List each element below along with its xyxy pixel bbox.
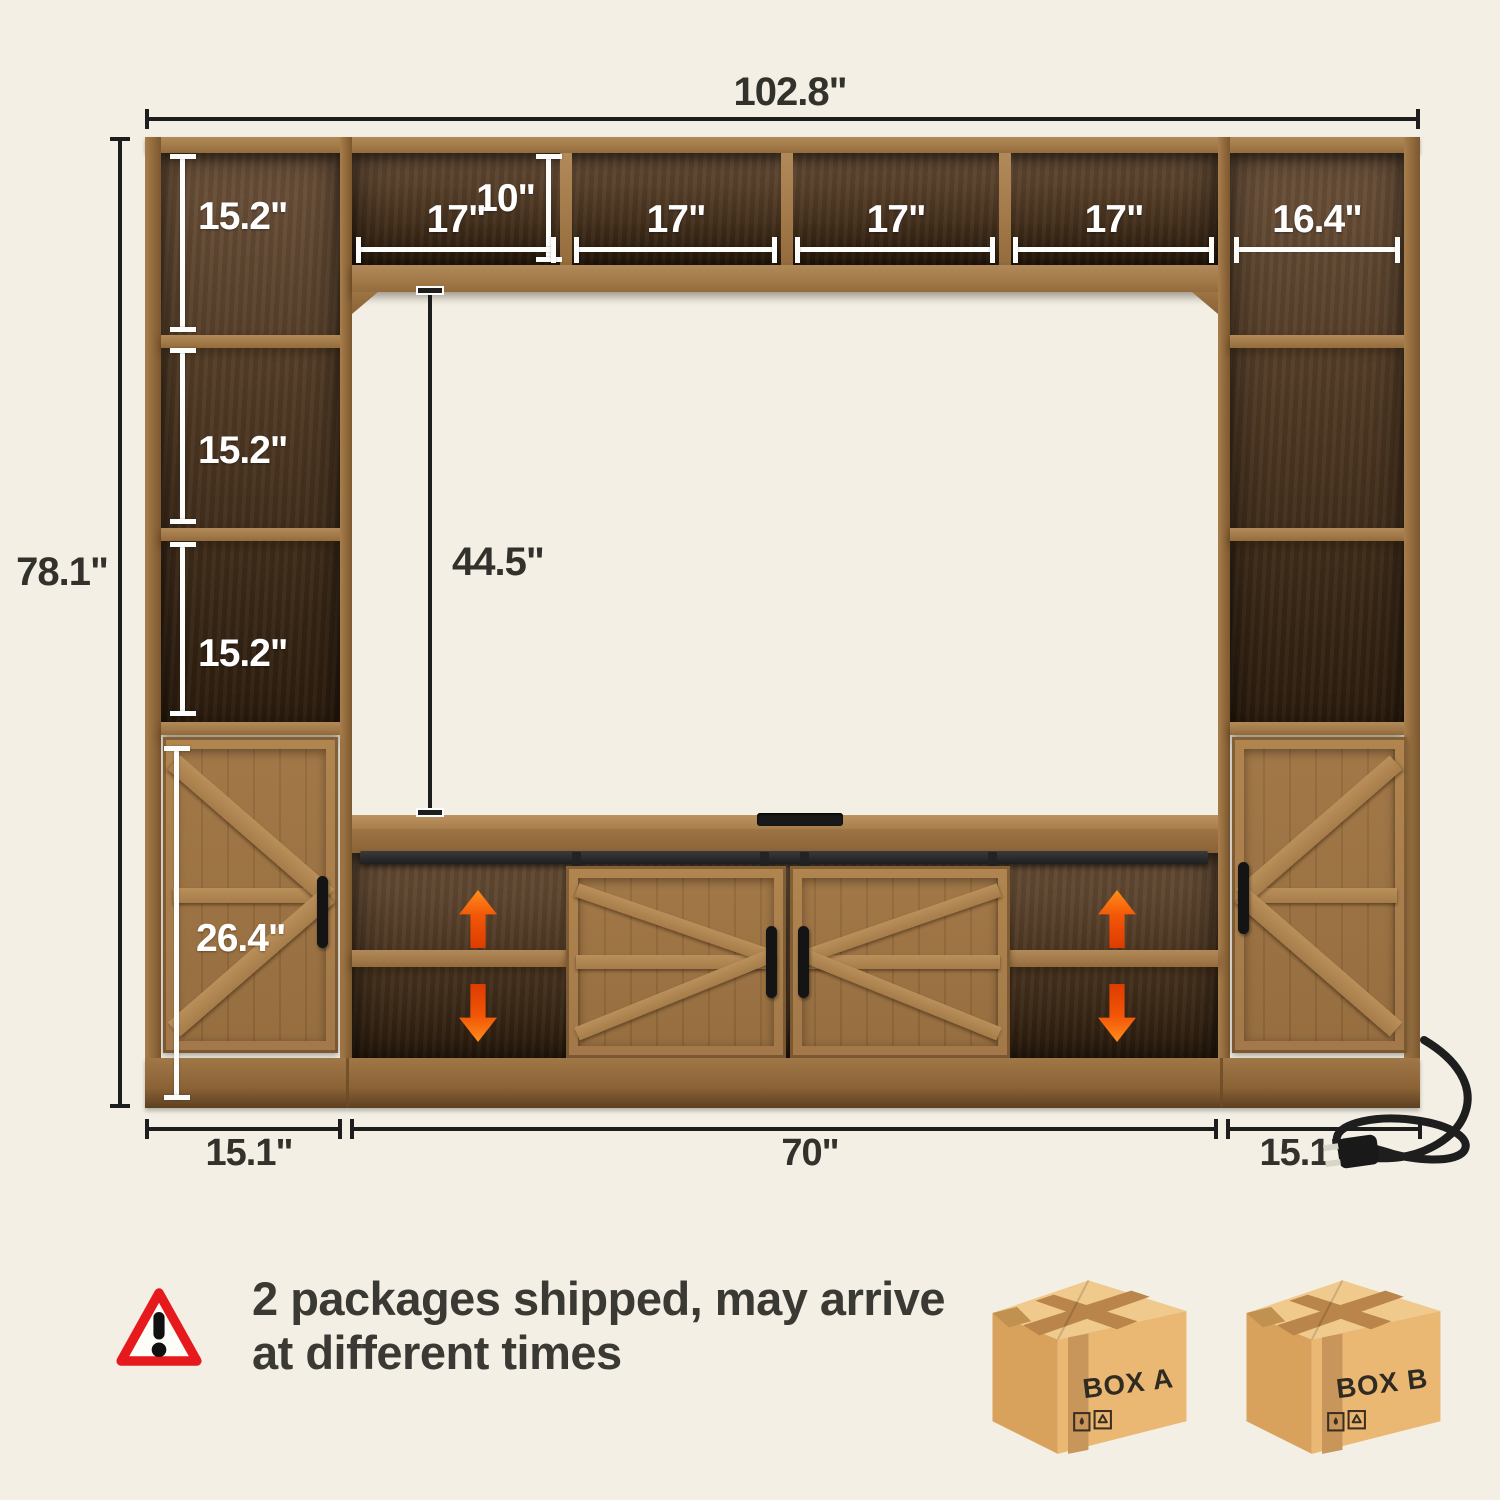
right-cabinet-barn-door bbox=[1232, 737, 1407, 1053]
left-cabinet-handle bbox=[317, 876, 328, 948]
tv-door-handle-left bbox=[766, 926, 777, 998]
shipping-box-a: BOX A bbox=[986, 1262, 1196, 1458]
right-tower-inner-wall bbox=[1218, 137, 1230, 1058]
dim-tick bbox=[110, 1104, 130, 1108]
sliding-door-rail bbox=[360, 851, 1208, 864]
dim-cap bbox=[170, 519, 196, 524]
bottom-right-dimension-line bbox=[1226, 1127, 1422, 1131]
hutch-bottom-shelf bbox=[352, 265, 1218, 292]
left-cubby3-label: 15.2" bbox=[198, 634, 287, 673]
hutch-cubby4-dimension-line bbox=[1015, 247, 1214, 252]
hutch-cubby2-dimension-line bbox=[576, 247, 777, 252]
door-mid-rail bbox=[173, 888, 328, 903]
dim-cap bbox=[536, 257, 562, 262]
dim-cap bbox=[1395, 237, 1400, 263]
left-tower-shelf-2 bbox=[161, 528, 340, 541]
dim-cap bbox=[170, 542, 196, 547]
console-right-shelf bbox=[1010, 950, 1218, 967]
dim-cap bbox=[536, 154, 562, 159]
product-dimension-diagram: 102.8" 78.1" 44.5" 15.1" 70" 15.1" 15.2"… bbox=[0, 0, 1500, 1500]
door-mid-rail bbox=[1242, 888, 1397, 903]
hutch-cubby4-label: 17" bbox=[1044, 200, 1184, 239]
cabinet-height-label: 26.4" bbox=[196, 919, 285, 958]
base-seam bbox=[1220, 1058, 1223, 1108]
shipping-notice-line1: 2 packages shipped, may arrive bbox=[252, 1272, 1012, 1326]
bottom-center-dimension-line bbox=[350, 1127, 1218, 1131]
dim-cap bbox=[356, 237, 361, 263]
dim-cap bbox=[574, 237, 579, 263]
dim-tick bbox=[350, 1119, 354, 1139]
hutch-partition-1 bbox=[560, 153, 572, 265]
dim-cap bbox=[1209, 237, 1214, 263]
dim-cap bbox=[1234, 237, 1239, 263]
dim-cap bbox=[164, 746, 190, 751]
hutch-partition-2 bbox=[781, 153, 793, 265]
right-tower-shelf-2 bbox=[1230, 528, 1404, 541]
left-tower-inner-wall bbox=[340, 137, 352, 1058]
base-plinth bbox=[145, 1058, 1420, 1108]
bottom-left-dimension-line bbox=[145, 1127, 342, 1131]
bottom-center-label: 70" bbox=[730, 1134, 890, 1172]
dim-cap bbox=[772, 237, 777, 263]
hutch-partition-3 bbox=[999, 153, 1011, 265]
total-width-dimension-line bbox=[145, 117, 1420, 121]
dim-tick bbox=[110, 137, 130, 141]
dim-tick bbox=[1418, 1119, 1422, 1139]
tv-door-handle-right bbox=[798, 926, 809, 998]
total-height-label: 78.1" bbox=[0, 552, 108, 592]
hutch-cubby3-label: 17" bbox=[826, 200, 966, 239]
hutch-corbel-right bbox=[1192, 292, 1218, 314]
hutch-cubby1-label: 17" bbox=[386, 200, 526, 239]
right-tower-shelf-1 bbox=[1230, 335, 1404, 348]
hutch-cubby2-label: 17" bbox=[606, 200, 746, 239]
shipping-notice: 2 packages shipped, may arrive at differ… bbox=[252, 1272, 1012, 1380]
tv-sliding-door-left bbox=[566, 866, 786, 1058]
dim-cap bbox=[170, 711, 196, 716]
dim-cap bbox=[170, 348, 196, 353]
tv-opening-height-label: 44.5" bbox=[452, 542, 592, 582]
dim-cap bbox=[551, 237, 556, 263]
console-left-shelf bbox=[352, 950, 566, 967]
dim-tick bbox=[1214, 1119, 1218, 1139]
left-cabinet-top-board bbox=[161, 722, 340, 735]
total-height-dimension-line bbox=[118, 137, 122, 1108]
left-cubby3-dimension-line bbox=[180, 544, 185, 716]
dim-tick bbox=[338, 1119, 342, 1139]
hutch-cubby1-dimension-line bbox=[358, 247, 556, 252]
right-cubby-label: 16.4" bbox=[1247, 200, 1387, 239]
left-cubby2-label: 15.2" bbox=[198, 431, 287, 470]
dim-tick bbox=[145, 109, 149, 129]
dim-cap bbox=[990, 237, 995, 263]
shipping-box-b: BOX B bbox=[1240, 1262, 1450, 1458]
hutch-cubby3-dimension-line bbox=[797, 247, 995, 252]
console-cable-outlet bbox=[757, 813, 843, 826]
right-cubby-dimension-line bbox=[1236, 247, 1400, 252]
dim-cap bbox=[164, 1095, 190, 1100]
dim-tick bbox=[1416, 109, 1420, 129]
right-cabinet-top-board bbox=[1230, 722, 1404, 735]
dim-cap bbox=[170, 154, 196, 159]
dim-cap bbox=[416, 808, 444, 817]
dim-tick bbox=[145, 1119, 149, 1139]
left-cabinet-barn-door bbox=[163, 737, 338, 1053]
tv-sliding-door-right bbox=[790, 866, 1010, 1058]
base-seam bbox=[346, 1058, 349, 1108]
shipping-notice-line2: at different times bbox=[252, 1326, 1012, 1380]
bottom-left-label: 15.1" bbox=[169, 1134, 329, 1172]
total-width-label: 102.8" bbox=[690, 72, 890, 112]
dim-cap bbox=[795, 237, 800, 263]
cabinet-height-dimension-line bbox=[174, 748, 179, 1100]
console-front-edge bbox=[352, 829, 1218, 853]
dim-cap bbox=[170, 327, 196, 332]
left-cubby1-label: 15.2" bbox=[198, 197, 287, 236]
dim-cap bbox=[1013, 237, 1018, 263]
bottom-right-label: 15.1" bbox=[1223, 1134, 1383, 1172]
left-cubby1-dimension-line bbox=[180, 156, 185, 332]
left-tower-outer-wall bbox=[145, 137, 161, 1058]
left-tower-shelf-1 bbox=[161, 335, 340, 348]
right-cabinet-handle bbox=[1238, 862, 1249, 934]
left-cubby2-dimension-line bbox=[180, 350, 185, 524]
warning-triangle-icon bbox=[116, 1286, 202, 1368]
tv-opening-dimension-line bbox=[428, 294, 432, 812]
dim-cap bbox=[416, 286, 444, 295]
hutch-corbel-left bbox=[352, 292, 378, 314]
